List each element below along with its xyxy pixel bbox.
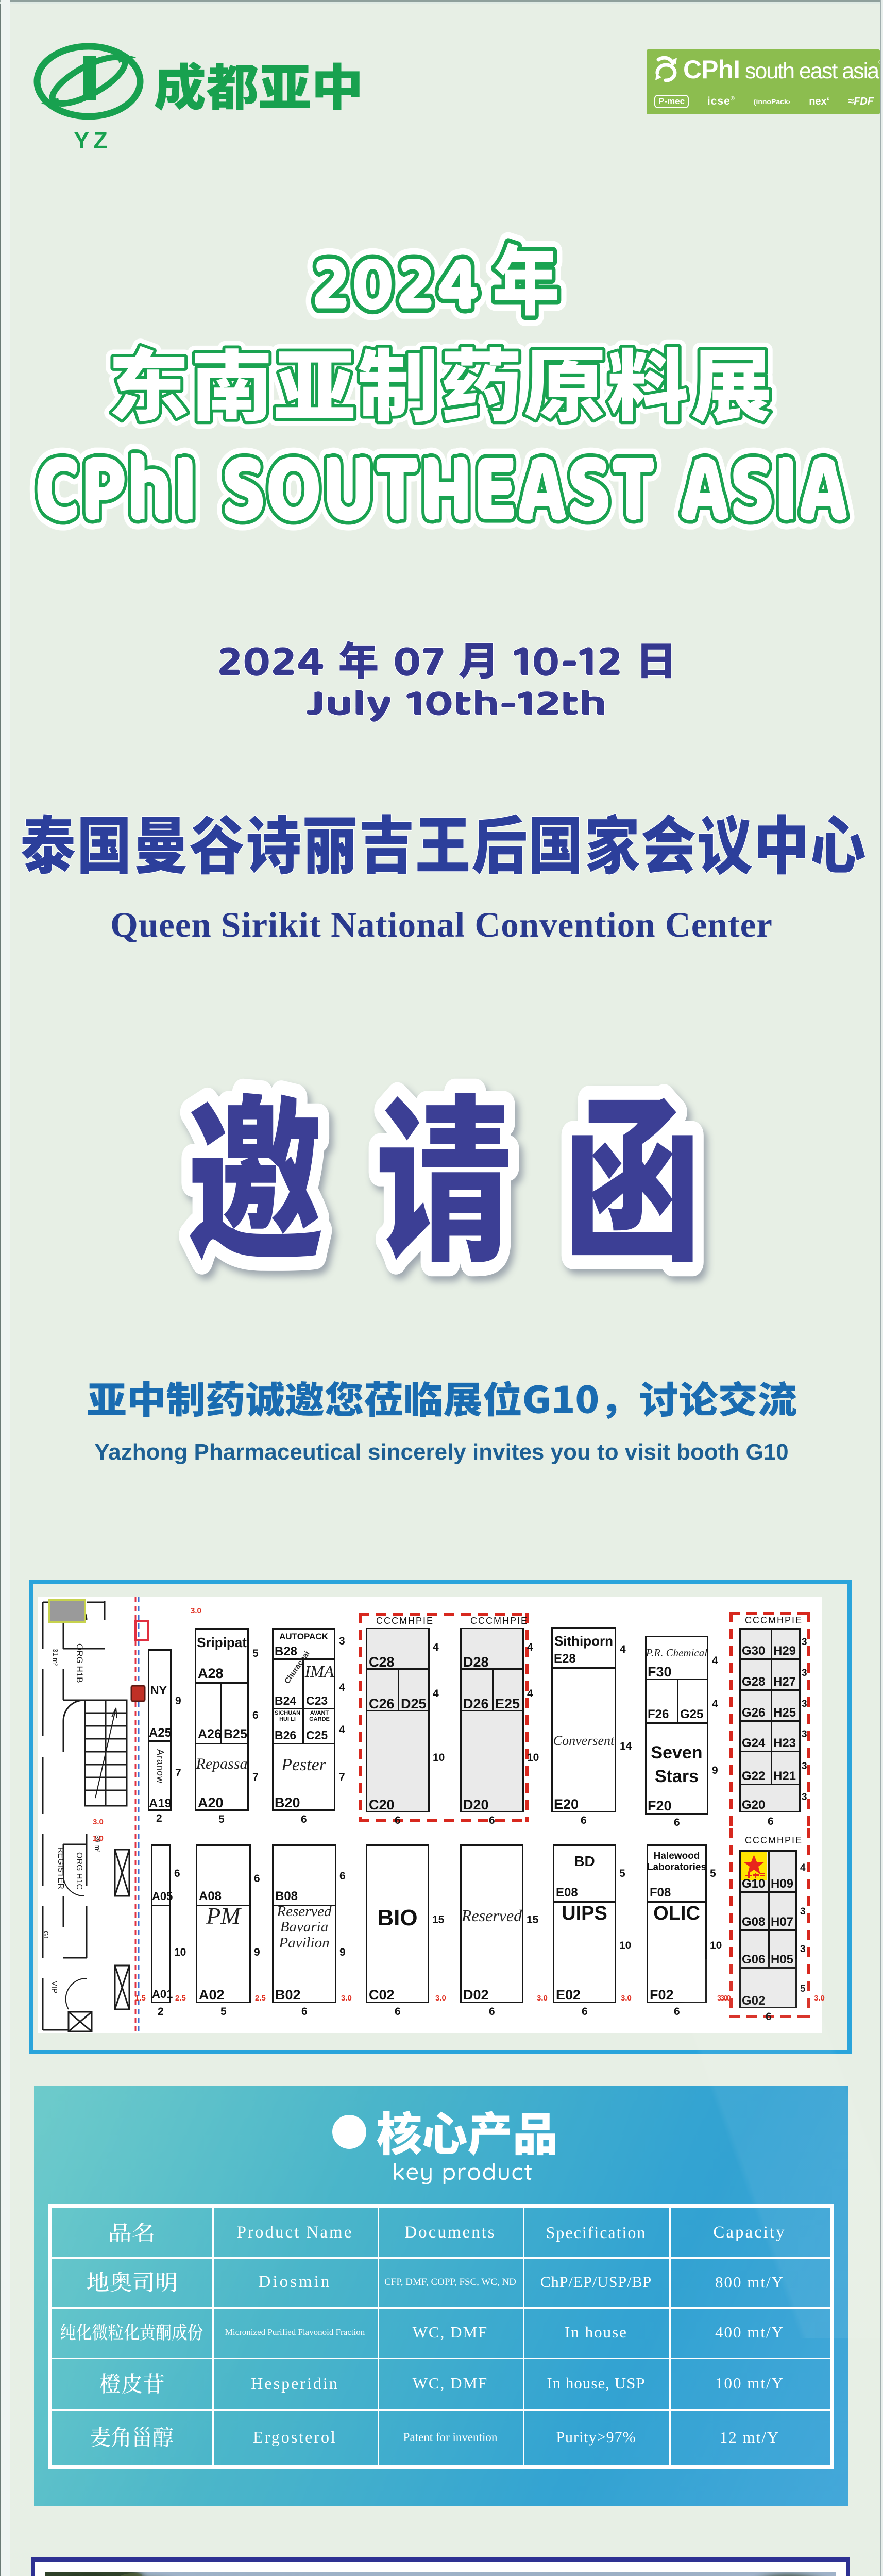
svg-text:YZ: YZ <box>74 127 112 154</box>
svg-text:VIP: VIP <box>50 1981 59 1993</box>
svg-text:G1: G1 <box>42 1931 49 1939</box>
svg-text:ORG H1C: ORG H1C <box>75 1852 83 1890</box>
svg-text:REGISTER: REGISTER <box>56 1847 65 1889</box>
svg-text:ORG H1B: ORG H1B <box>75 1643 84 1683</box>
svg-text:31 m²: 31 m² <box>52 1649 59 1666</box>
